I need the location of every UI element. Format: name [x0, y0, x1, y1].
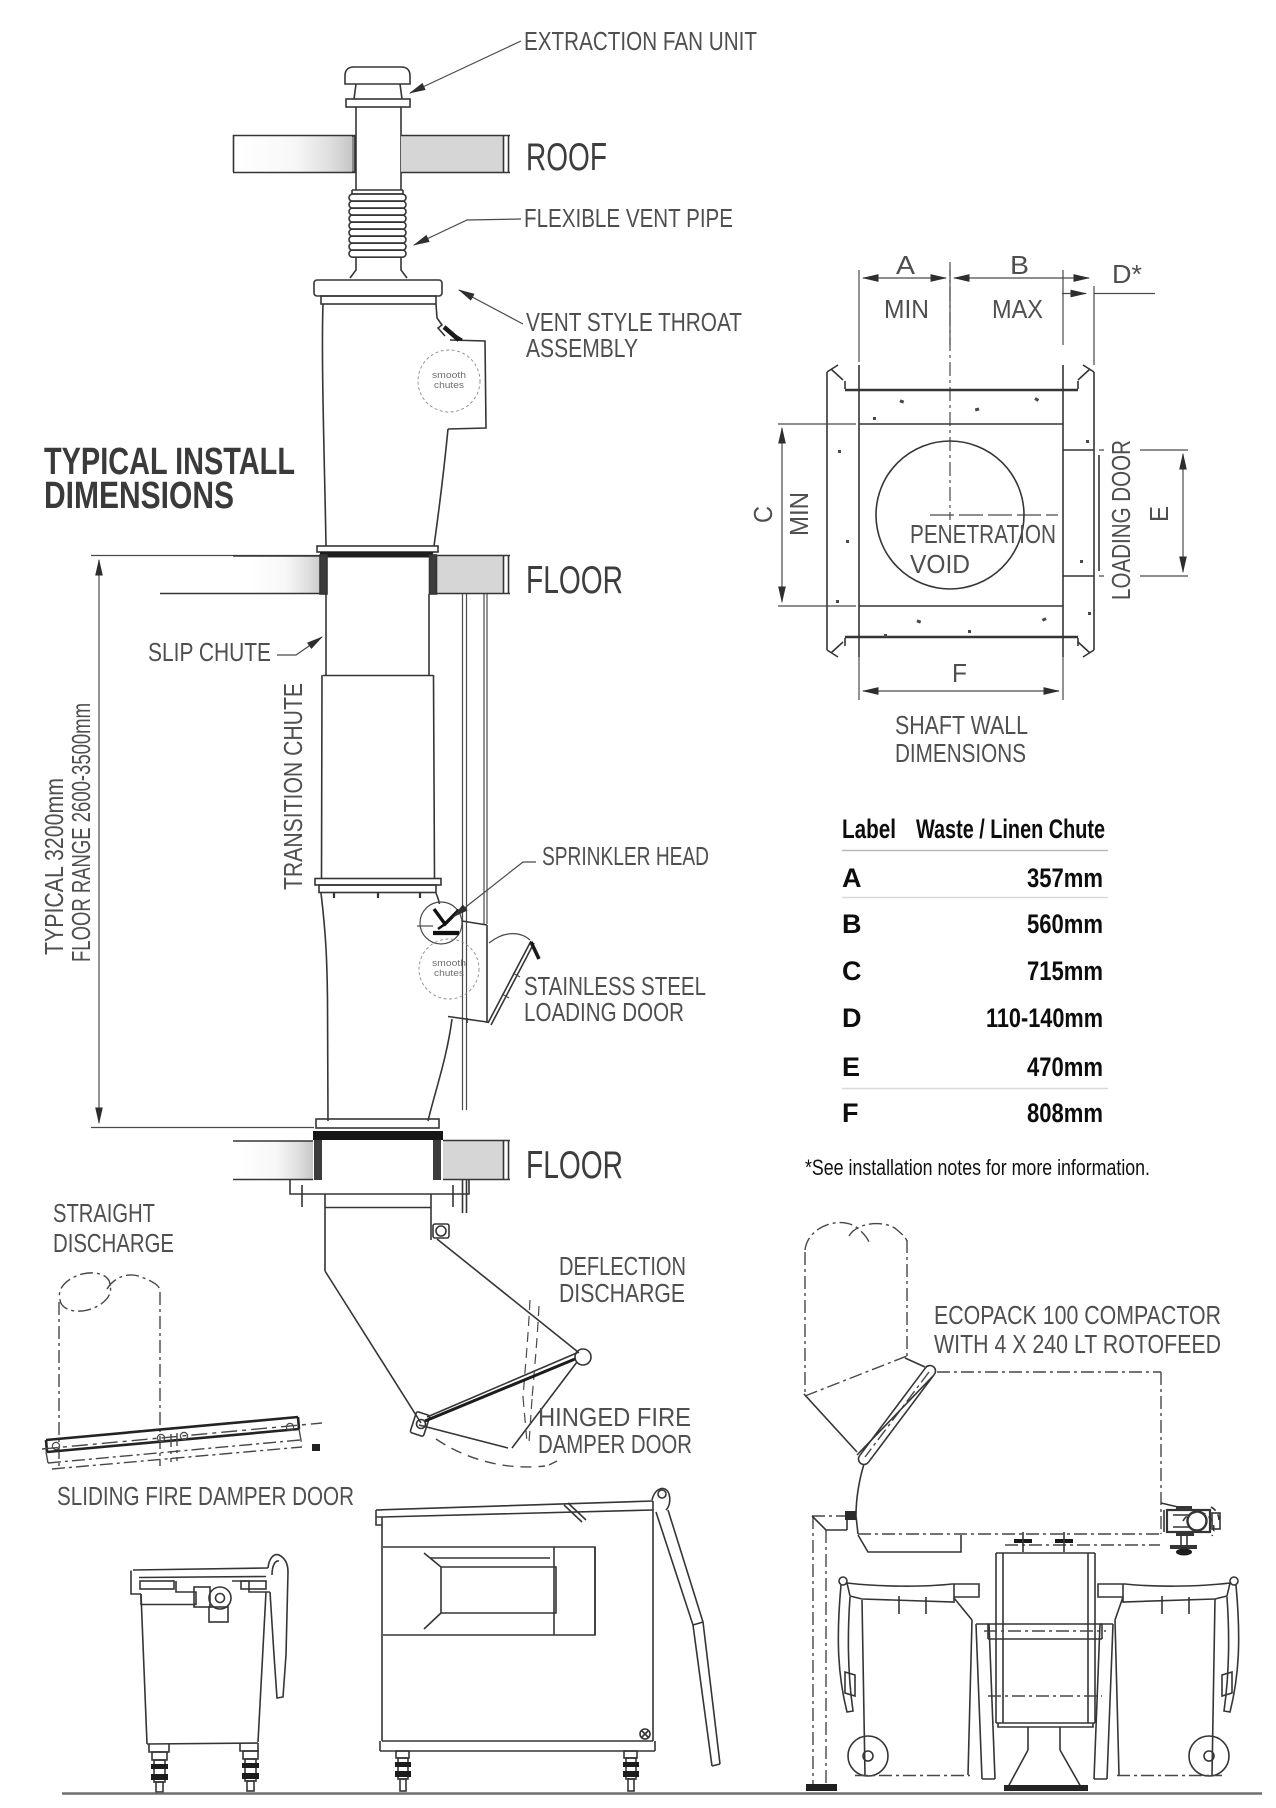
svg-text:smooth: smooth — [432, 958, 466, 968]
svg-text:DISCHARGE: DISCHARGE — [559, 1278, 685, 1308]
svg-text:VOID: VOID — [910, 549, 970, 579]
svg-text:DISCHARGE: DISCHARGE — [53, 1228, 174, 1258]
svg-text:TRANSITION CHUTE: TRANSITION CHUTE — [278, 683, 308, 890]
svg-text:FLOOR: FLOOR — [526, 1144, 623, 1187]
svg-text:WITH 4 X 240 LT ROTOFEED: WITH 4 X 240 LT ROTOFEED — [934, 1329, 1221, 1359]
svg-text:470mm: 470mm — [1027, 1052, 1103, 1082]
svg-text:MAX: MAX — [992, 294, 1043, 324]
svg-text:D*: D* — [1112, 259, 1142, 289]
svg-text:E: E — [1144, 506, 1174, 522]
svg-text:F: F — [842, 1098, 859, 1128]
svg-text:E: E — [842, 1052, 860, 1082]
svg-text:MIN: MIN — [784, 492, 814, 536]
svg-text:SHAFT WALL: SHAFT WALL — [895, 710, 1028, 740]
svg-text:A: A — [896, 250, 916, 280]
svg-text:DIMENSIONS: DIMENSIONS — [44, 475, 234, 517]
svg-text:FLOOR RANGE 2600-3500mm: FLOOR RANGE 2600-3500mm — [66, 703, 96, 962]
svg-text:DIMENSIONS: DIMENSIONS — [895, 738, 1026, 768]
svg-text:SLIP CHUTE: SLIP CHUTE — [148, 637, 271, 667]
svg-text:chutes: chutes — [434, 380, 465, 390]
svg-text:FLEXIBLE VENT PIPE: FLEXIBLE VENT PIPE — [524, 203, 733, 233]
svg-text:STRAIGHT: STRAIGHT — [53, 1198, 155, 1228]
svg-text:MIN: MIN — [884, 294, 929, 324]
svg-text:SLIDING FIRE DAMPER DOOR: SLIDING FIRE DAMPER DOOR — [57, 1481, 354, 1511]
svg-text:D: D — [842, 1003, 862, 1033]
svg-text:*See installation notes for mo: *See installation notes for more informa… — [805, 1155, 1150, 1180]
svg-text:TYPICAL 3200mm: TYPICAL 3200mm — [39, 778, 69, 955]
svg-text:B: B — [1010, 250, 1029, 280]
svg-text:560mm: 560mm — [1027, 909, 1103, 939]
svg-text:C: C — [748, 506, 778, 523]
svg-text:PENETRATION: PENETRATION — [910, 519, 1056, 549]
svg-text:ECOPACK 100 COMPACTOR: ECOPACK 100 COMPACTOR — [934, 1300, 1221, 1330]
svg-text:chutes: chutes — [434, 968, 465, 978]
svg-text:DEFLECTION: DEFLECTION — [559, 1251, 686, 1281]
svg-text:smooth: smooth — [432, 370, 466, 380]
svg-text:715mm: 715mm — [1027, 956, 1103, 986]
svg-text:SPRINKLER HEAD: SPRINKLER HEAD — [542, 841, 709, 871]
svg-text:LOADING DOOR: LOADING DOOR — [1106, 440, 1136, 600]
svg-text:A: A — [842, 863, 862, 893]
svg-text:C: C — [842, 956, 862, 986]
svg-text:F: F — [952, 658, 967, 688]
svg-text:110-140mm: 110-140mm — [986, 1003, 1103, 1033]
svg-text:EXTRACTION FAN UNIT: EXTRACTION FAN UNIT — [524, 26, 757, 56]
svg-text:Label: Label — [842, 814, 896, 844]
svg-text:357mm: 357mm — [1027, 863, 1103, 893]
svg-text:Waste / Linen Chute: Waste / Linen Chute — [916, 814, 1105, 844]
svg-text:808mm: 808mm — [1027, 1098, 1103, 1128]
svg-text:DAMPER DOOR: DAMPER DOOR — [538, 1429, 692, 1459]
svg-text:FLOOR: FLOOR — [526, 559, 623, 602]
svg-text:B: B — [842, 909, 862, 939]
svg-text:ASSEMBLY: ASSEMBLY — [526, 333, 638, 363]
svg-text:LOADING DOOR: LOADING DOOR — [524, 997, 684, 1027]
svg-text:HINGED FIRE: HINGED FIRE — [538, 1402, 691, 1432]
svg-text:ROOF: ROOF — [526, 136, 607, 179]
